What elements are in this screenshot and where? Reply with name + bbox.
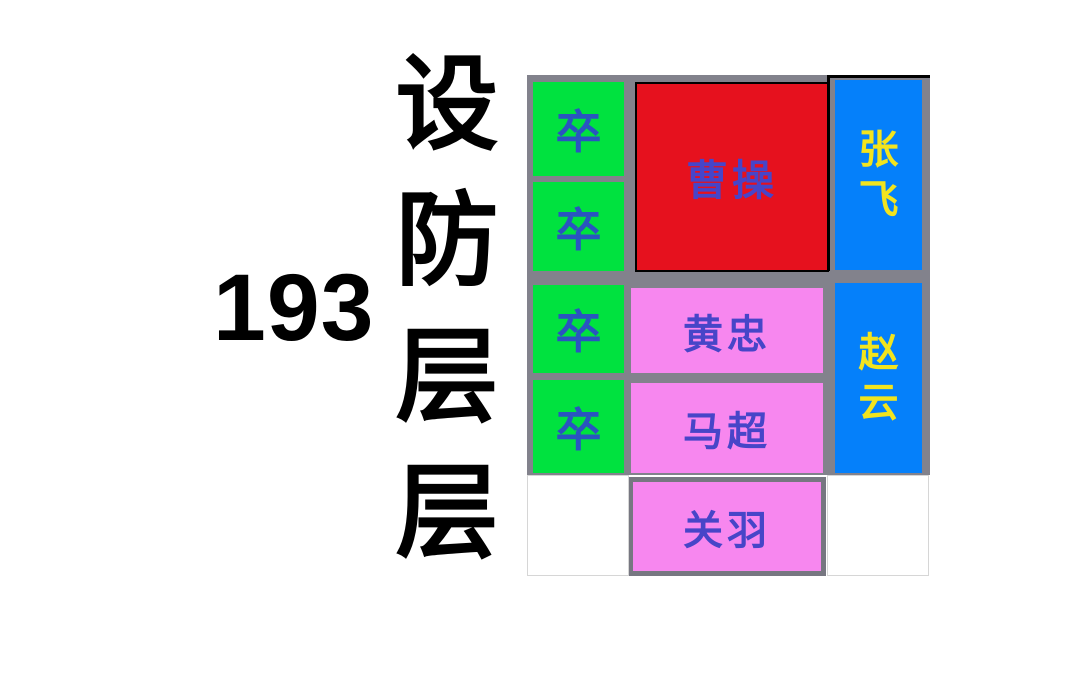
piece-soldier-3[interactable]: 卒 bbox=[533, 285, 624, 373]
piece-soldier-2[interactable]: 卒 bbox=[533, 182, 624, 271]
level-name-char: 设 bbox=[388, 37, 506, 173]
piece-zhangfei[interactable]: 张 飞 bbox=[835, 80, 922, 270]
piece-label: 卒 bbox=[556, 296, 602, 362]
level-name-char: 层 bbox=[388, 309, 506, 445]
highlight-line-vertical bbox=[827, 75, 830, 271]
level-name-char: 防 bbox=[388, 173, 506, 309]
thumbnail-canvas: 193 设 防 层 层 卒 卒 卒 卒 曹操 张 飞 赵 云 bbox=[0, 0, 1082, 676]
piece-label: 黄忠 bbox=[683, 302, 771, 360]
piece-soldier-1[interactable]: 卒 bbox=[533, 82, 624, 176]
highlight-line-horizontal bbox=[827, 75, 930, 78]
level-number: 193 bbox=[213, 261, 375, 356]
piece-label: 张 bbox=[859, 125, 899, 175]
piece-label: 关羽 bbox=[683, 498, 771, 556]
piece-label: 飞 bbox=[859, 175, 899, 225]
empty-cell-bottom-right bbox=[827, 475, 929, 576]
piece-zhaoyun[interactable]: 赵 云 bbox=[835, 283, 922, 473]
piece-caocao[interactable]: 曹操 bbox=[635, 82, 829, 272]
piece-label: 卒 bbox=[556, 194, 602, 260]
piece-label: 卒 bbox=[556, 394, 602, 460]
empty-cell-bottom-left bbox=[527, 475, 629, 576]
piece-soldier-4[interactable]: 卒 bbox=[533, 380, 624, 473]
piece-label: 马超 bbox=[683, 399, 771, 457]
level-name-char: 层 bbox=[388, 445, 506, 581]
piece-huangzhong[interactable]: 黄忠 bbox=[631, 288, 823, 373]
klotski-board: 卒 卒 卒 卒 曹操 张 飞 赵 云 黄忠 马超 关羽 bbox=[527, 75, 930, 577]
piece-label: 卒 bbox=[556, 96, 602, 162]
piece-label: 云 bbox=[859, 378, 899, 428]
piece-machao[interactable]: 马超 bbox=[631, 383, 823, 473]
piece-label: 赵 bbox=[859, 328, 899, 378]
level-name-vertical: 设 防 层 层 bbox=[388, 37, 506, 581]
piece-label: 曹操 bbox=[686, 147, 778, 208]
piece-guanyu[interactable]: 关羽 bbox=[628, 477, 826, 576]
